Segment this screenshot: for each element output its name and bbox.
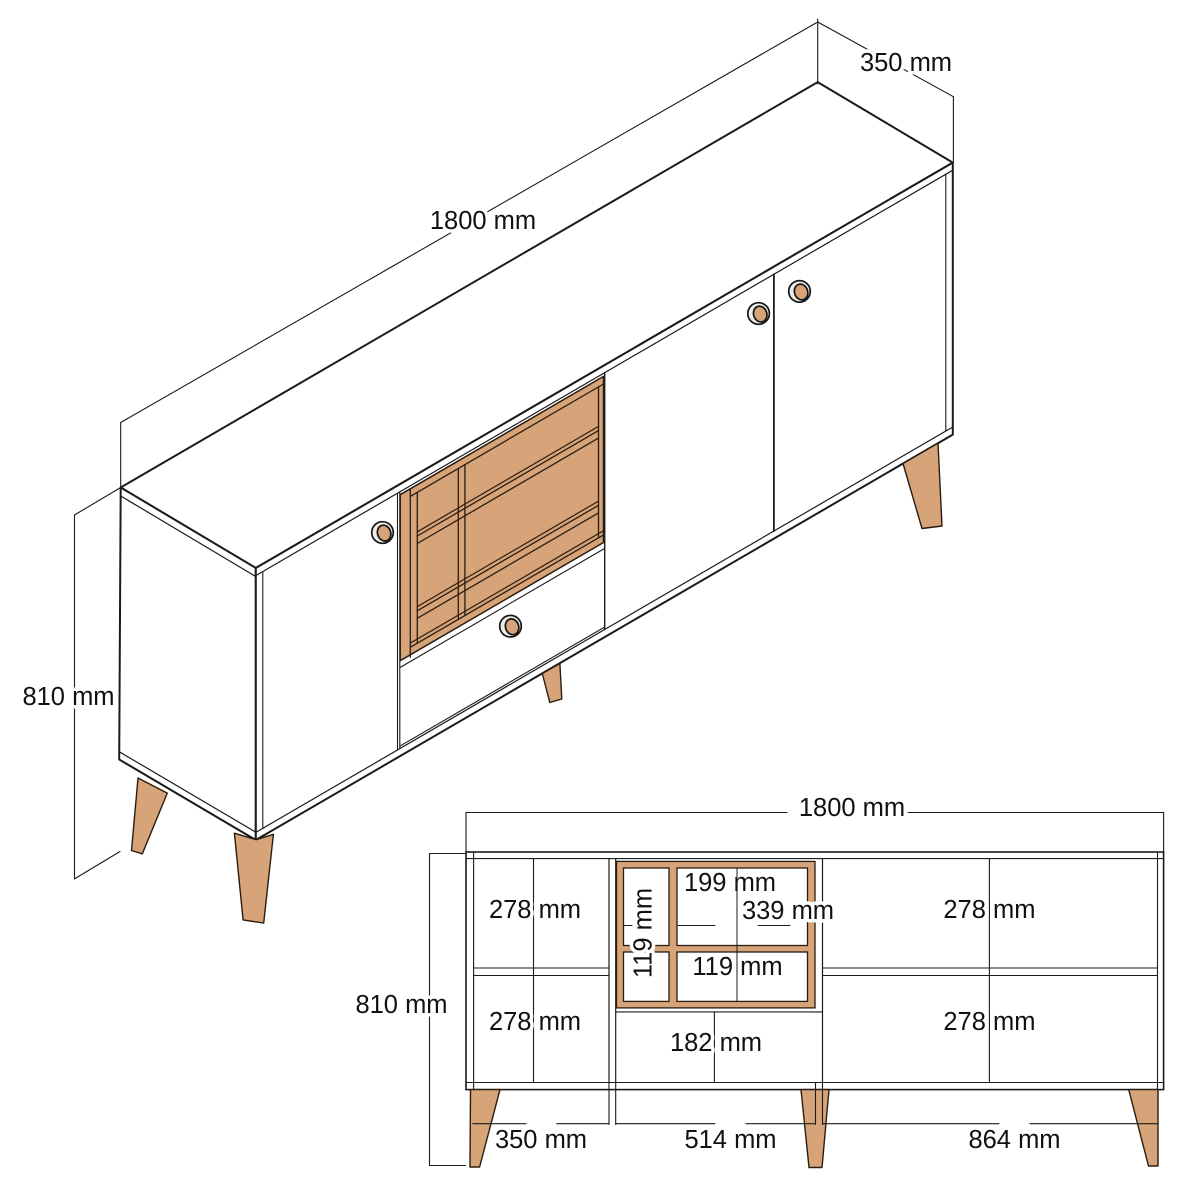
svg-text:350 mm: 350 mm (860, 49, 952, 77)
svg-text:199 mm: 199 mm (684, 869, 776, 897)
svg-text:278 mm: 278 mm (943, 896, 1035, 924)
svg-text:278 mm: 278 mm (489, 1008, 581, 1036)
svg-text:514 mm: 514 mm (684, 1126, 776, 1154)
svg-text:864 mm: 864 mm (968, 1126, 1060, 1154)
svg-text:119 mm: 119 mm (630, 888, 658, 978)
svg-text:350 mm: 350 mm (495, 1126, 587, 1154)
svg-text:810 mm: 810 mm (22, 683, 114, 711)
svg-text:1800 mm: 1800 mm (799, 794, 905, 822)
svg-text:278 mm: 278 mm (489, 896, 581, 924)
svg-text:1800 mm: 1800 mm (430, 207, 536, 235)
svg-text:278 mm: 278 mm (943, 1008, 1035, 1036)
svg-text:182 mm: 182 mm (670, 1029, 762, 1057)
svg-text:810 mm: 810 mm (355, 991, 447, 1019)
svg-text:339 mm: 339 mm (742, 897, 834, 925)
